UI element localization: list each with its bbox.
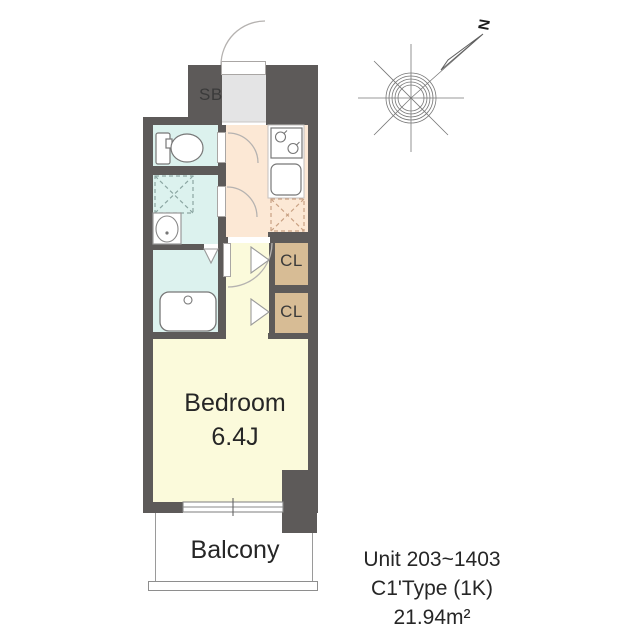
window bbox=[183, 498, 283, 516]
toilet-icon bbox=[156, 133, 203, 164]
closet-2-label: CL bbox=[275, 302, 308, 322]
closet-2-door bbox=[251, 299, 269, 325]
closet-1-door bbox=[251, 247, 269, 273]
stove-icon bbox=[271, 128, 302, 158]
unit-range: Unit 203~1403 bbox=[332, 545, 532, 574]
plan-linework bbox=[0, 0, 640, 640]
bedroom-size-label: 6.4J bbox=[155, 423, 315, 452]
washbasin-icon bbox=[153, 213, 181, 244]
north-arrow-head bbox=[441, 34, 483, 70]
door-swing-arcs bbox=[221, 21, 272, 287]
unit-info-block: Unit 203~1403 C1'Type (1K) 21.94m² bbox=[332, 545, 532, 632]
entrance-door-arc bbox=[221, 21, 265, 65]
bathtub-icon bbox=[160, 292, 216, 331]
washing-machine-space bbox=[155, 176, 193, 213]
floor-plan-page: SB CL CL Bedroom 6.4J Balcony N Unit 203… bbox=[0, 0, 640, 640]
balcony-label: Balcony bbox=[155, 536, 315, 565]
bedroom-label: Bedroom bbox=[155, 389, 315, 418]
washroom-door-arc bbox=[227, 187, 257, 217]
shoe-box-label: SB bbox=[199, 85, 222, 105]
bedroom-door-arc bbox=[228, 243, 272, 287]
kitchen-counter bbox=[268, 125, 304, 198]
plan-type: C1'Type (1K) bbox=[332, 574, 532, 603]
bath-folding-door bbox=[204, 249, 218, 263]
toilet-door-arc bbox=[228, 133, 258, 163]
compass bbox=[358, 34, 483, 152]
floor-area: 21.94m² bbox=[332, 603, 532, 632]
kitchen-sink-icon bbox=[271, 164, 301, 195]
refrigerator-space bbox=[271, 199, 304, 231]
closet-1-label: CL bbox=[275, 251, 308, 271]
